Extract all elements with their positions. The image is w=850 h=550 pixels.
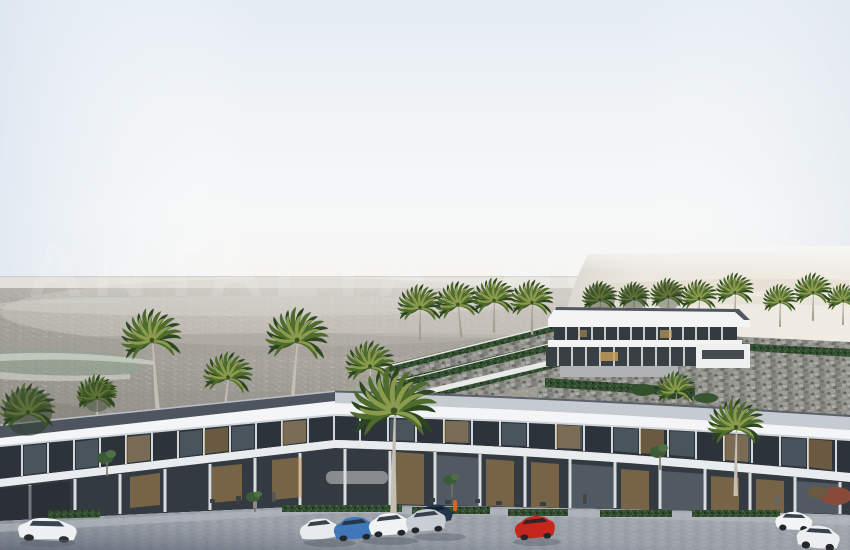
svg-text:ANTALYA: ANTALYA xyxy=(28,228,441,313)
